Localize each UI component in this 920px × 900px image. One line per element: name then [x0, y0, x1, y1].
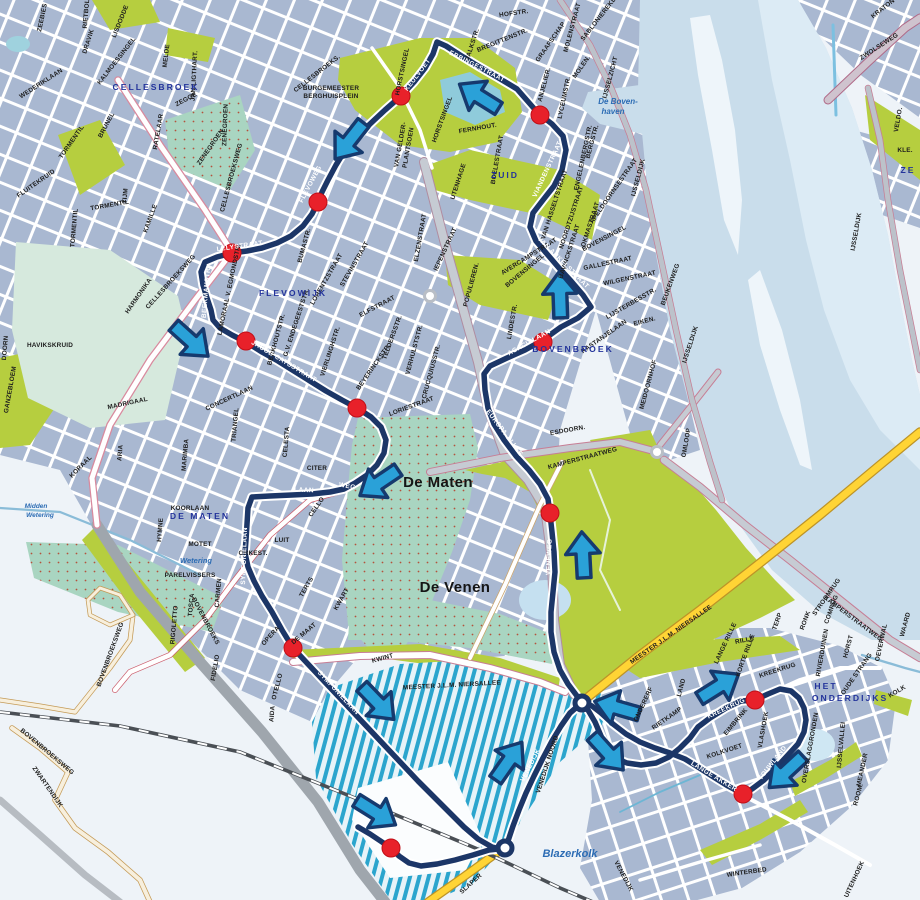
street-label: BURGEMEESTER — [303, 85, 360, 92]
route-stop-2[interactable] — [531, 106, 549, 124]
district-label: ZUID — [491, 170, 519, 180]
water-name-label: Midden — [25, 503, 48, 510]
route-stop-11[interactable] — [746, 691, 764, 709]
area-name-label: De Maten — [403, 474, 473, 491]
route-junction — [575, 696, 589, 710]
district-label: FLEVOWIJK — [259, 288, 327, 298]
route-stop-8[interactable] — [541, 504, 559, 522]
street-label: KLE. — [897, 147, 912, 154]
water-name-label: haven — [601, 107, 624, 116]
route-stop-10[interactable] — [382, 839, 400, 857]
street-label: LUIT — [275, 537, 290, 544]
water-name-label: De Boven- — [598, 97, 638, 106]
pond-tl — [6, 36, 30, 52]
district-label: HET — [814, 681, 837, 691]
route-stop-3[interactable] — [309, 193, 327, 211]
district-label: BOVENBROEK — [532, 344, 614, 354]
district-label: ZE — [901, 165, 916, 175]
street-label: MOTET — [188, 541, 211, 548]
map-viewport: WEDERIKLAANKALMOESSINGELZEEBIESDRAVIKRIE… — [0, 0, 920, 900]
district-label: CELLESBROEK — [113, 82, 200, 92]
water-name-label: Blazerkolk — [542, 848, 598, 860]
street-label: ZENEGROEN — [221, 104, 229, 147]
water-name-label: Wetering — [26, 512, 54, 519]
street-label: ARIA — [116, 444, 124, 461]
area-name-label: De Venen — [420, 579, 491, 596]
route-street-label: LAAN — [294, 487, 314, 495]
district-label: DE MATEN — [170, 511, 230, 521]
street-label: TIJM — [121, 188, 129, 204]
street-label: PARELVISSERS — [165, 572, 216, 579]
route-stop-6[interactable] — [348, 399, 366, 417]
street-label: AIDA — [268, 705, 276, 722]
street-label: HAVIKSKRUID — [27, 342, 73, 349]
pond-se-green — [519, 580, 571, 620]
route-junction — [498, 841, 512, 855]
roundabout — [652, 447, 663, 458]
street-label: BERGHUISPLEIN — [303, 93, 358, 100]
roundabout — [425, 291, 436, 302]
route-street-label: VENEWEG — [545, 539, 553, 576]
street-label: CITER — [307, 465, 327, 472]
city-map: WEDERIKLAANKALMOESSINGELZEEBIESDRAVIKRIE… — [0, 0, 920, 900]
district-label: ONDERDIJKS — [812, 693, 888, 703]
water-name-label: Wetering — [180, 556, 212, 565]
